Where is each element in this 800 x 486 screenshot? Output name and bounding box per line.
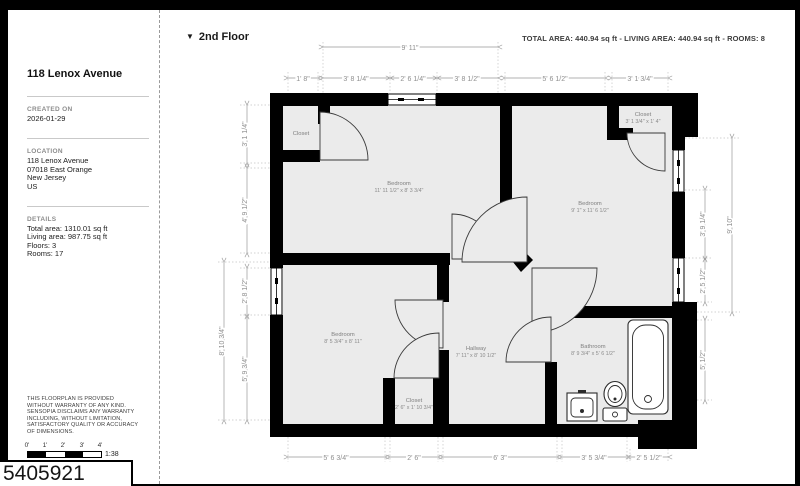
svg-text:3' 1 3/4": 3' 1 3/4" xyxy=(627,76,653,83)
svg-text:Closet: Closet xyxy=(406,398,423,404)
floor-plan: Closet Bedroom 11' 11 1/2" x 8' 3 3/4" C… xyxy=(0,0,800,486)
window-icon xyxy=(673,258,684,302)
window-icon xyxy=(271,268,282,315)
window-icon xyxy=(673,150,684,192)
svg-text:3' 9 1/4": 3' 9 1/4" xyxy=(700,211,707,237)
svg-text:2' 8 1/2": 2' 8 1/2" xyxy=(242,278,249,304)
toilet-icon xyxy=(603,382,627,422)
svg-text:Bedroom: Bedroom xyxy=(331,332,355,338)
svg-text:2' 5 1/2": 2' 5 1/2" xyxy=(700,268,707,294)
plan-id-badge: 5405921 xyxy=(0,460,133,486)
svg-text:8' 10 3/4": 8' 10 3/4" xyxy=(219,326,226,356)
svg-text:Bedroom: Bedroom xyxy=(578,201,602,207)
bathtub-icon xyxy=(628,320,668,414)
svg-text:4' 9 1/2": 4' 9 1/2" xyxy=(242,197,249,223)
svg-text:8' 9 3/4" x 5' 6 1/2": 8' 9 3/4" x 5' 6 1/2" xyxy=(571,351,615,357)
svg-text:2' 6": 2' 6" xyxy=(407,455,421,462)
sink-icon xyxy=(567,390,597,421)
svg-text:5' 1/2": 5' 1/2" xyxy=(700,350,707,370)
svg-text:3' 8 1/2": 3' 8 1/2" xyxy=(454,76,480,83)
svg-text:3' 1 3/4" x 1' 4": 3' 1 3/4" x 1' 4" xyxy=(626,119,661,125)
svg-text:3' 8 1/4": 3' 8 1/4" xyxy=(343,76,369,83)
svg-text:Hallway: Hallway xyxy=(466,346,486,352)
svg-text:9' 10": 9' 10" xyxy=(727,216,734,234)
svg-text:Bedroom: Bedroom xyxy=(387,181,411,187)
svg-text:6' 3": 6' 3" xyxy=(493,455,507,462)
svg-text:2' 6 1/4": 2' 6 1/4" xyxy=(400,76,426,83)
svg-text:3' 5 3/4": 3' 5 3/4" xyxy=(581,455,607,462)
svg-text:Bathroom: Bathroom xyxy=(580,344,605,350)
svg-text:9' 1" x 11' 6 1/2": 9' 1" x 11' 6 1/2" xyxy=(571,208,609,214)
svg-text:5' 6 1/2": 5' 6 1/2" xyxy=(542,76,568,83)
svg-text:5' 9 3/4": 5' 9 3/4" xyxy=(242,356,249,382)
svg-text:2' 5 1/2": 2' 5 1/2" xyxy=(636,455,662,462)
svg-text:1' 8": 1' 8" xyxy=(296,76,310,83)
svg-text:7' 11" x 8' 10 1/2": 7' 11" x 8' 10 1/2" xyxy=(456,353,497,359)
window-icon xyxy=(388,94,436,105)
svg-text:Closet: Closet xyxy=(635,112,652,118)
svg-text:2' 6" x 1' 10 3/4": 2' 6" x 1' 10 3/4" xyxy=(395,405,433,411)
svg-text:8' 5 3/4" x 8' 11": 8' 5 3/4" x 8' 11" xyxy=(324,339,362,345)
svg-text:5' 6 3/4": 5' 6 3/4" xyxy=(323,455,349,462)
svg-text:11' 11 1/2" x 8' 3 3/4": 11' 11 1/2" x 8' 3 3/4" xyxy=(375,188,424,194)
svg-text:Closet: Closet xyxy=(293,131,310,137)
svg-text:9' 11": 9' 11" xyxy=(402,45,419,52)
svg-text:3' 1 1/4": 3' 1 1/4" xyxy=(242,121,249,147)
room-label-closet-tl: Closet xyxy=(293,131,310,137)
